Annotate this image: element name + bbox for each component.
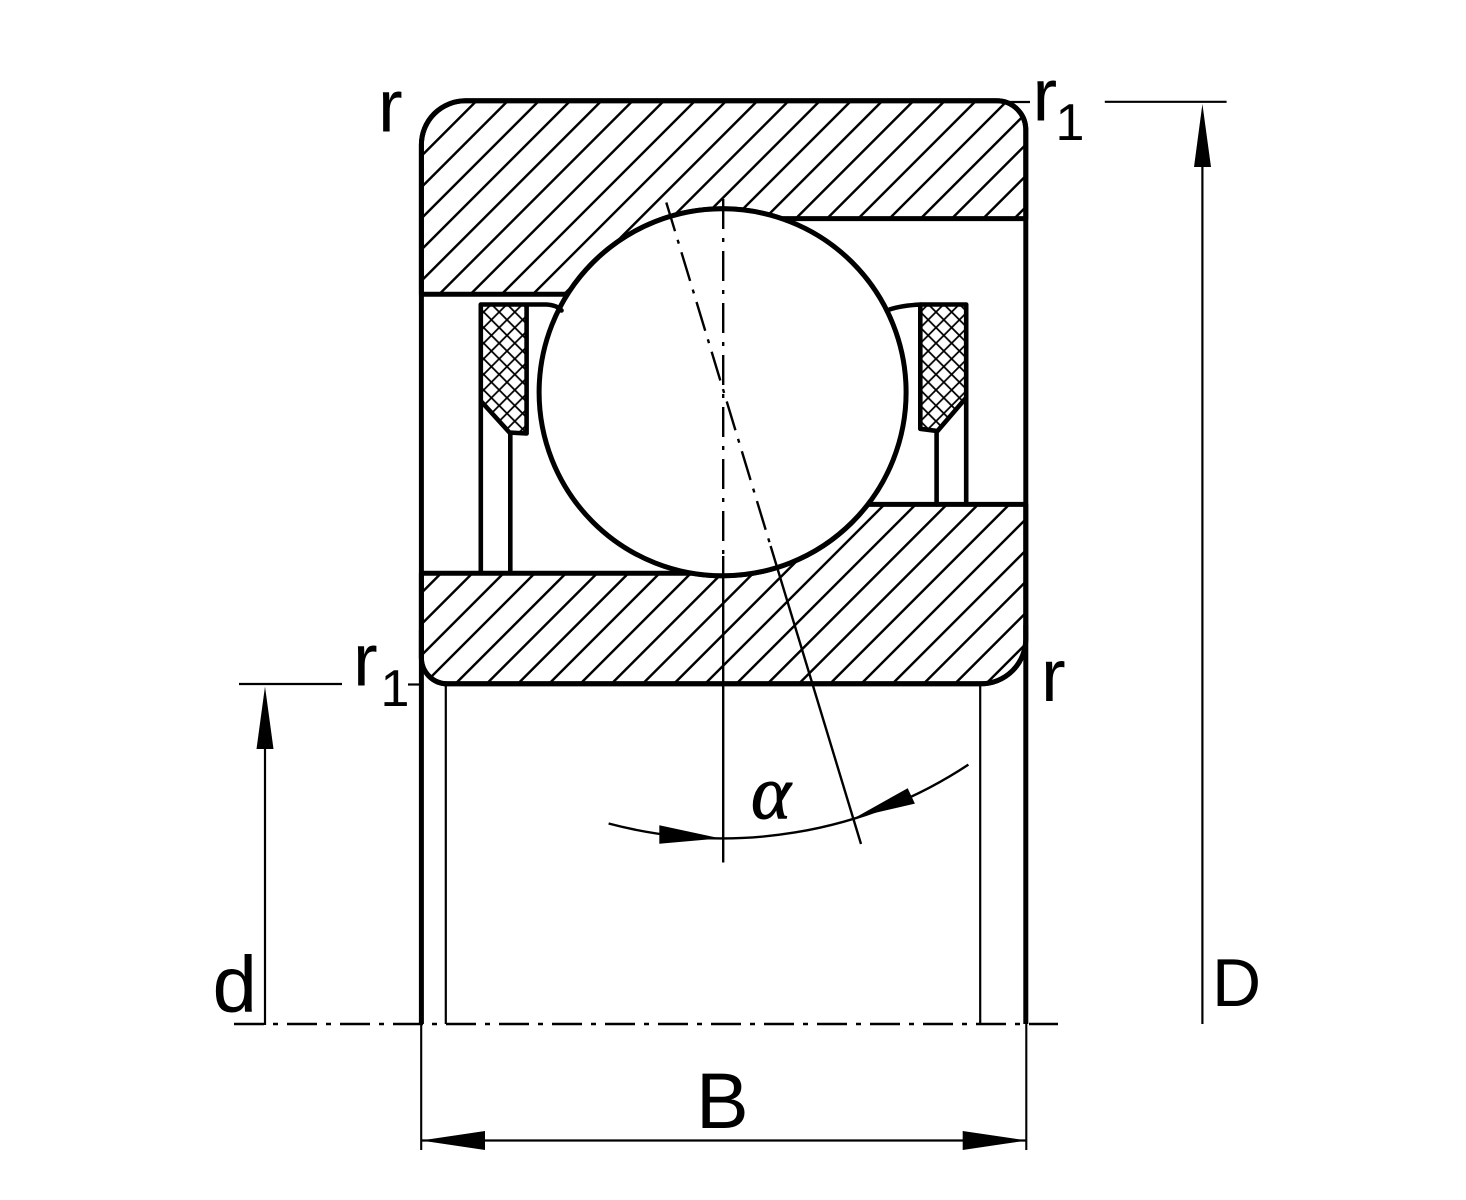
svg-text:D: D (1212, 945, 1261, 1021)
svg-text:r: r (378, 65, 403, 148)
svg-text:B: B (696, 1056, 749, 1145)
svg-text:1: 1 (1056, 94, 1085, 152)
svg-text:d: d (213, 940, 258, 1029)
svg-text:1: 1 (381, 660, 410, 718)
svg-text:r: r (1041, 634, 1066, 717)
svg-text:r: r (1033, 54, 1058, 137)
svg-text:r: r (353, 619, 378, 702)
svg-text:α: α (751, 752, 793, 836)
